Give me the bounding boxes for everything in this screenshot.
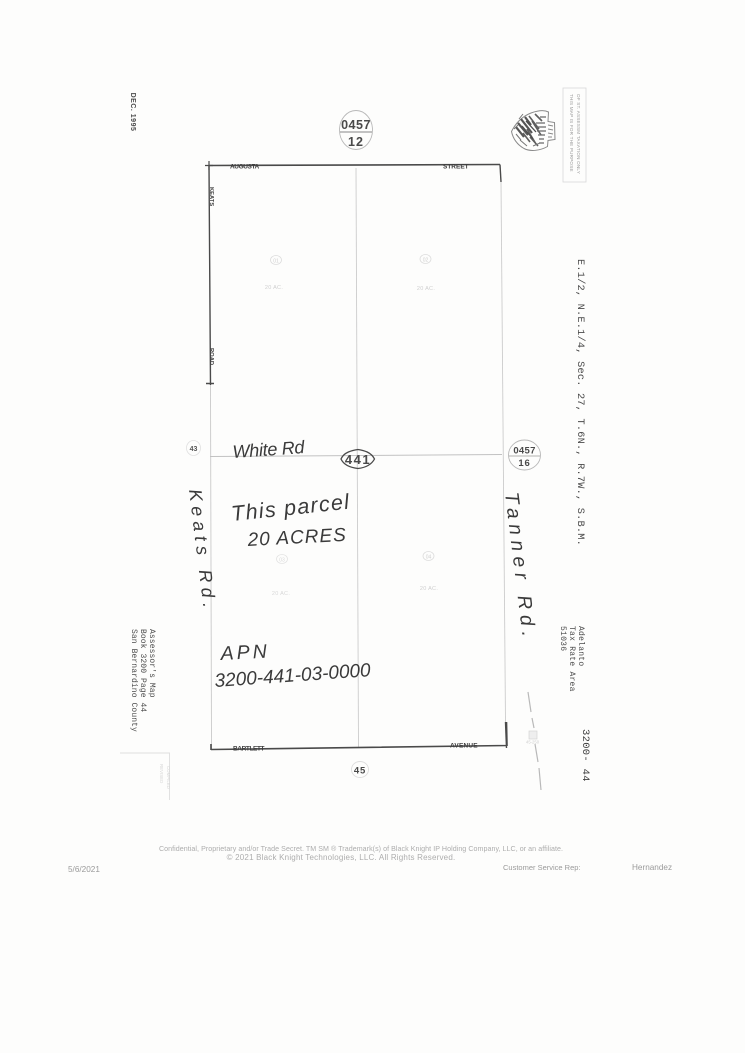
svg-text:20 AC.: 20 AC. (417, 286, 435, 292)
svg-text:DEC. 1995: DEC. 1995 (129, 93, 136, 132)
svg-text:ROAD: ROAD (208, 348, 214, 365)
svg-text:Tax Rate Area: Tax Rate Area (567, 626, 576, 692)
svg-text:Confidential, Proprietary and/: Confidential, Proprietary and/or Trade S… (159, 845, 563, 853)
svg-text:Adelanto: Adelanto (576, 626, 585, 666)
svg-text:San Bernardino County: San Bernardino County (129, 629, 138, 732)
svg-text:04: 04 (426, 555, 432, 561)
svg-text:BARTLETT: BARTLETT (233, 746, 265, 753)
svg-text:REVISED: REVISED (159, 764, 164, 783)
svg-text:Hernandez: Hernandez (632, 863, 672, 872)
svg-text:45-250: 45-250 (526, 740, 540, 745)
svg-text:© 2021 Black Knight Technologi: © 2021 Black Knight Technologies, LLC. A… (227, 853, 456, 862)
svg-text:03: 03 (279, 558, 285, 564)
svg-text:AVENUE: AVENUE (450, 743, 478, 750)
svg-text:01: 01 (273, 259, 279, 265)
svg-text:02: 02 (423, 258, 429, 264)
svg-text:12: 12 (348, 135, 364, 149)
svg-text:Book 3200 Page 44: Book 3200 Page 44 (138, 629, 147, 712)
svg-text:THIS MAP IS FOR THE PURPOSE: THIS MAP IS FOR THE PURPOSE (569, 94, 574, 172)
svg-text:16: 16 (518, 458, 530, 469)
svg-text:3200- 44: 3200- 44 (579, 729, 591, 782)
svg-text:5/6/2021: 5/6/2021 (68, 865, 100, 874)
svg-text:0457: 0457 (341, 118, 371, 132)
svg-text:APN: APN (219, 640, 270, 665)
svg-text:OF ST. ASSESSM TAXATION ONLY: OF ST. ASSESSM TAXATION ONLY (576, 94, 581, 174)
svg-text:51036: 51036 (558, 626, 567, 651)
svg-text:Assessor's Map: Assessor's Map (147, 629, 156, 698)
svg-text:20 AC.: 20 AC. (265, 285, 283, 291)
svg-text:Customer Service Rep:: Customer Service Rep: (503, 863, 581, 872)
svg-text:20 AC.: 20 AC. (272, 591, 290, 597)
svg-text:STREET: STREET (443, 164, 469, 171)
svg-text:0457: 0457 (513, 446, 535, 457)
svg-text:441: 441 (345, 452, 371, 467)
svg-text:AUGUSTA: AUGUSTA (230, 164, 260, 171)
svg-text:43: 43 (190, 446, 198, 453)
svg-text:20 AC.: 20 AC. (420, 586, 438, 592)
svg-text:KEATS: KEATS (208, 187, 214, 206)
svg-text:45: 45 (354, 766, 366, 777)
svg-text:E.1/2, N.E.1/4, Sec. 27, T.6N.: E.1/2, N.E.1/4, Sec. 27, T.6N., R.7W., S… (574, 259, 586, 546)
svg-text:COMPILED: COMPILED (166, 766, 171, 789)
